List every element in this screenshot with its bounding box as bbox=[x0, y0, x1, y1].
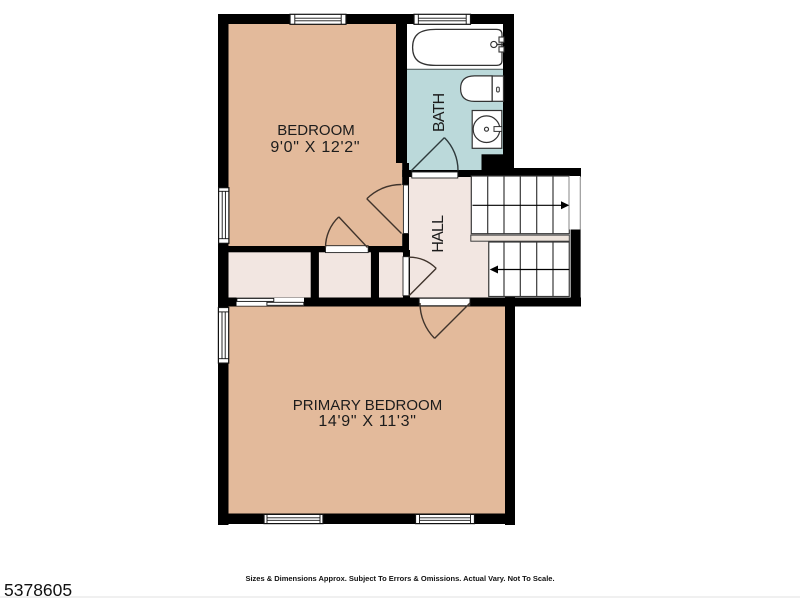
svg-text:9'0" X 12'2": 9'0" X 12'2" bbox=[270, 139, 360, 156]
svg-text:Sizes & Dimensions Approx. Sub: Sizes & Dimensions Approx. Subject To Er… bbox=[245, 574, 554, 583]
svg-text:HALL: HALL bbox=[430, 215, 447, 253]
svg-text:PRIMARY BEDROOM: PRIMARY BEDROOM bbox=[293, 397, 442, 414]
svg-text:14'9" X 11'3": 14'9" X 11'3" bbox=[318, 413, 416, 430]
svg-text:BEDROOM: BEDROOM bbox=[277, 122, 355, 139]
svg-text:BATH: BATH bbox=[431, 93, 448, 132]
